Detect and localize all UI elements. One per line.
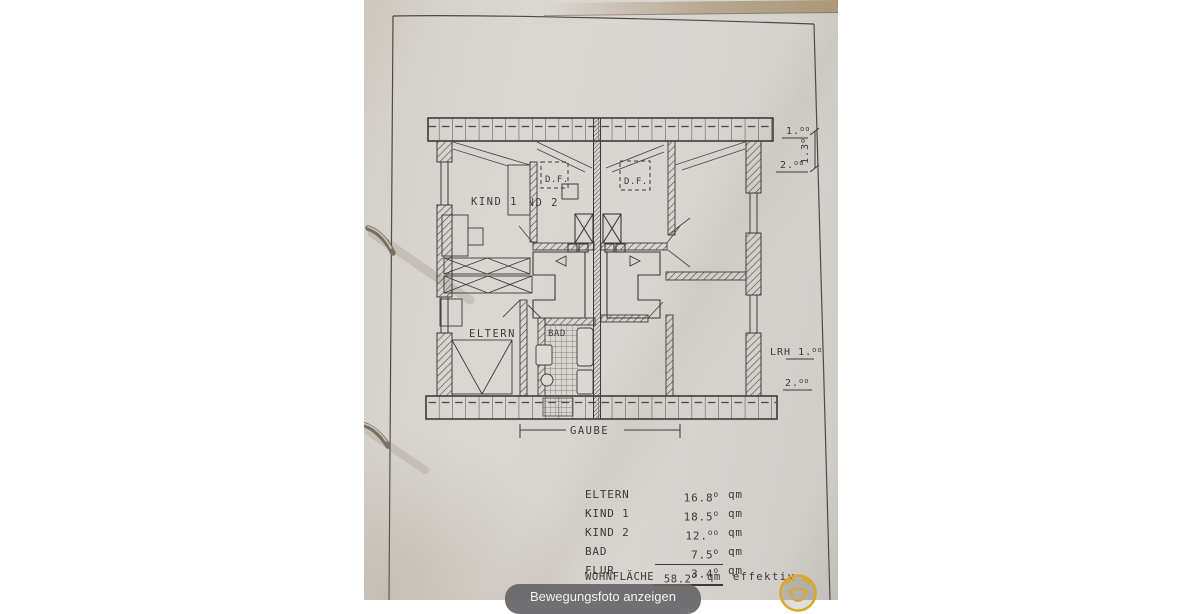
paper-shadow [364,410,594,600]
table-rule [655,564,723,565]
table-row: BAD 7.5o qm [585,544,785,563]
window-right-bottom [750,295,757,333]
dim-2-00-bottom: 2.oo [785,377,809,389]
window-left-top [441,162,448,205]
df-label-right: D.F. [624,177,648,187]
window-right-top [750,193,757,233]
party-wall [594,118,601,419]
furniture [440,215,532,394]
room-label-kind1: KIND 1 [471,196,518,208]
dim-1-00: 1.oo [786,125,810,137]
table-row: KIND 1 18.5o qm [585,506,785,525]
room-label-eltern: ELTERN [469,328,516,340]
dim-lrh: LRH 1.oo [770,346,823,358]
window-left-bottom [441,297,448,333]
motion-photo-chip[interactable]: Bewegungsfoto anzeigen [505,584,701,614]
room-label-bad: BAD [548,329,566,339]
area-table: ELTERN 16.8o qm KIND 1 18.5o qm KIND 2 1… [585,487,785,582]
table-row: ELTERN 16.8o qm [585,487,785,506]
bear-face-logo-icon [778,573,818,613]
df-label-left: D.F. [545,175,569,185]
photo-viewer-screen: { "plan": { "labels": { "kind1": "KIND 1… [0,0,1200,600]
dim-2-00-top: 2.oo [780,159,804,171]
table-row: KIND 2 12.oo qm [585,525,785,544]
